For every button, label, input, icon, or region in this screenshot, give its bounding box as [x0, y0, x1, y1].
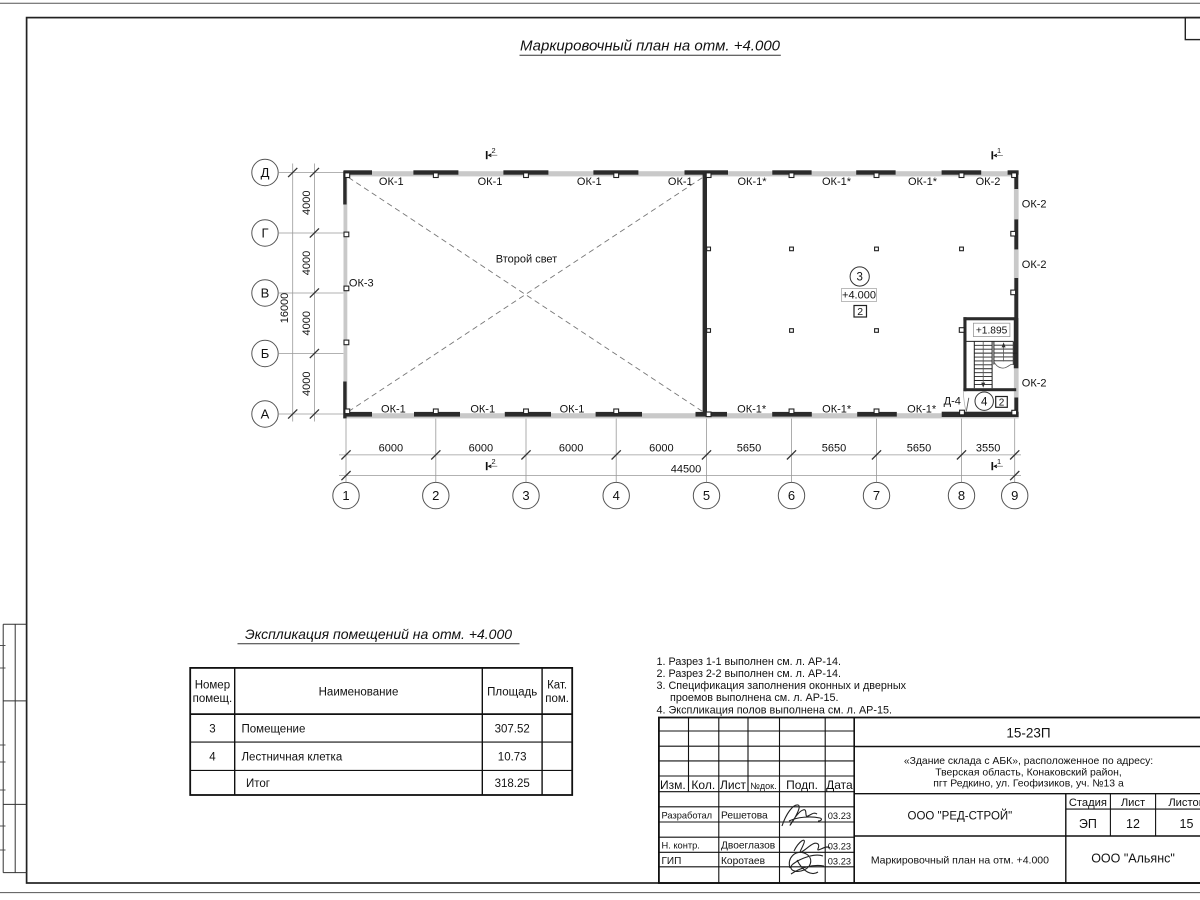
svg-text:ОК-2: ОК-2	[1022, 259, 1047, 271]
svg-text:Подп.: Подп.	[786, 778, 818, 792]
svg-text:ООО "РЕД-СТРОЙ": ООО "РЕД-СТРОЙ"	[908, 809, 1013, 822]
svg-text:ГИП: ГИП	[662, 856, 682, 867]
svg-text:3: 3	[522, 488, 529, 503]
svg-text:ОК-1: ОК-1	[470, 403, 495, 415]
svg-text:ОК-1*: ОК-1*	[822, 176, 852, 188]
svg-text:Тверская область, Конаковский: Тверская область, Конаковский район,	[935, 766, 1122, 778]
svg-text:ОК-1: ОК-1	[560, 403, 585, 415]
svg-text:15: 15	[1180, 817, 1194, 831]
svg-text:Решетова: Решетова	[721, 810, 768, 821]
svg-text:ЭП: ЭП	[1079, 817, 1097, 831]
svg-text:пгт Редкино, ул. Геофизиков, у: пгт Редкино, ул. Геофизиков, уч. №13 а	[933, 778, 1124, 790]
svg-text:10.73: 10.73	[498, 751, 527, 763]
svg-text:5650: 5650	[907, 443, 931, 455]
svg-text:8: 8	[958, 488, 965, 503]
svg-text:ОК-1*: ОК-1*	[737, 403, 767, 415]
svg-text:ОК-1*: ОК-1*	[737, 176, 767, 188]
svg-text:ОК-1: ОК-1	[379, 176, 404, 188]
svg-text:12: 12	[1126, 817, 1140, 831]
svg-text:Кат.: Кат.	[547, 680, 567, 692]
svg-text:Б: Б	[261, 346, 270, 361]
svg-text:9: 9	[1011, 488, 1018, 503]
svg-text:4000: 4000	[301, 191, 313, 215]
svg-text:2. Разрез 2-2 выполнен см. л.: 2. Разрез 2-2 выполнен см. л. АР-14.	[657, 668, 841, 680]
svg-text:Экспликация помещений на отм.: Экспликация помещений на отм. +4.000	[245, 626, 512, 642]
svg-text:307.52: 307.52	[495, 723, 530, 735]
svg-text:6000: 6000	[379, 443, 403, 455]
svg-text:В: В	[261, 286, 270, 301]
svg-text:2: 2	[491, 146, 495, 155]
svg-text:ОК-1: ОК-1	[478, 176, 503, 188]
svg-text:помещ.: помещ.	[193, 693, 233, 705]
svg-text:ОК-1*: ОК-1*	[822, 403, 852, 415]
svg-text:проемов выполнена см. л. АР-15: проемов выполнена см. л. АР-15.	[670, 692, 839, 704]
svg-text:4: 4	[981, 396, 988, 408]
svg-text:ОК-1*: ОК-1*	[908, 176, 938, 188]
svg-text:Второй свет: Второй свет	[496, 254, 557, 266]
svg-text:4: 4	[613, 488, 620, 503]
svg-text:1. Разрез 1-1 выполнен см. л.: 1. Разрез 1-1 выполнен см. л. АР-14.	[657, 656, 841, 668]
svg-text:Двоеглазов: Двоеглазов	[721, 841, 775, 852]
svg-text:7: 7	[873, 488, 880, 503]
svg-text:Изм.: Изм.	[660, 778, 686, 792]
svg-text:5650: 5650	[737, 443, 761, 455]
svg-text:+1.895: +1.895	[976, 326, 1008, 337]
svg-text:5650: 5650	[822, 443, 846, 455]
svg-text:ОК-2: ОК-2	[976, 176, 1001, 188]
svg-text:03.23: 03.23	[828, 841, 851, 851]
svg-text:6: 6	[788, 488, 795, 503]
svg-text:2: 2	[857, 306, 863, 318]
svg-text:Маркировочный план на отм. +4.: Маркировочный план на отм. +4.000	[871, 854, 1049, 866]
svg-text:1: 1	[997, 146, 1001, 155]
svg-text:Разработал: Разработал	[662, 810, 713, 820]
svg-text:3: 3	[209, 723, 215, 735]
svg-text:318.25: 318.25	[495, 778, 530, 790]
svg-text:Д: Д	[261, 165, 270, 180]
svg-text:03.23: 03.23	[828, 811, 851, 821]
svg-text:Лист: Лист	[1121, 797, 1145, 809]
svg-text:ООО "Альянс": ООО "Альянс"	[1091, 852, 1175, 866]
svg-text:2: 2	[491, 457, 495, 466]
svg-text:Лист: Лист	[720, 778, 747, 792]
svg-text:Кол.: Кол.	[691, 778, 715, 792]
svg-text:4000: 4000	[301, 372, 313, 396]
svg-text:5: 5	[703, 488, 710, 503]
svg-text:1: 1	[342, 488, 349, 503]
svg-text:3. Спецификация заполнения око: 3. Спецификация заполнения оконных и две…	[657, 680, 907, 692]
svg-text:03.23: 03.23	[828, 857, 851, 867]
svg-text:2: 2	[999, 398, 1005, 409]
svg-text:ОК-1: ОК-1	[577, 176, 602, 188]
svg-text:ОК-2: ОК-2	[1022, 377, 1047, 389]
svg-text:6000: 6000	[649, 443, 673, 455]
svg-text:4000: 4000	[301, 251, 313, 275]
svg-text:№док.: №док.	[750, 781, 776, 791]
svg-text:16000: 16000	[279, 293, 291, 324]
svg-text:Помещение: Помещение	[242, 723, 306, 735]
svg-text:6000: 6000	[559, 443, 583, 455]
svg-text:ОК-3: ОК-3	[349, 277, 374, 289]
svg-text:3550: 3550	[976, 443, 1000, 455]
svg-text:3: 3	[856, 272, 862, 284]
svg-text:4000: 4000	[301, 311, 313, 335]
svg-text:Площадь: Площадь	[487, 687, 537, 699]
svg-text:ОК-1: ОК-1	[668, 176, 693, 188]
svg-text:Наименование: Наименование	[319, 687, 399, 699]
svg-text:+4.000: +4.000	[842, 290, 876, 302]
svg-text:Г: Г	[261, 226, 268, 241]
svg-text:Коротаев: Коротаев	[721, 856, 765, 867]
svg-text:ОК-1: ОК-1	[381, 403, 406, 415]
svg-text:6000: 6000	[469, 443, 493, 455]
svg-text:4: 4	[209, 751, 216, 763]
svg-text:Листов: Листов	[1168, 797, 1200, 809]
svg-text:Лестничная клетка: Лестничная клетка	[242, 751, 343, 763]
svg-text:Итог: Итог	[246, 778, 270, 790]
svg-text:Дата: Дата	[826, 778, 853, 792]
svg-text:ОК-1*: ОК-1*	[907, 403, 937, 415]
svg-text:Д-4: Д-4	[944, 395, 961, 407]
svg-text:15-23П: 15-23П	[1006, 725, 1050, 740]
svg-text:А: А	[261, 407, 270, 422]
svg-text:Маркировочный план на отм. +4.: Маркировочный план на отм. +4.000	[520, 38, 781, 55]
svg-text:Н. контр.: Н. контр.	[662, 841, 700, 851]
svg-text:44500: 44500	[671, 463, 702, 475]
svg-text:ОК-2: ОК-2	[1022, 198, 1047, 210]
svg-text:«Здание склада с АБК», располо: «Здание склада с АБК», расположенное по …	[904, 756, 1153, 767]
svg-text:Стадия: Стадия	[1069, 797, 1107, 809]
svg-text:2: 2	[432, 488, 439, 503]
svg-text:4. Экспликация полов выполнена: 4. Экспликация полов выполнена см. л. АР…	[657, 704, 892, 716]
svg-text:1: 1	[997, 457, 1001, 466]
svg-text:Номер: Номер	[195, 680, 230, 692]
svg-text:пом.: пом.	[545, 693, 569, 705]
